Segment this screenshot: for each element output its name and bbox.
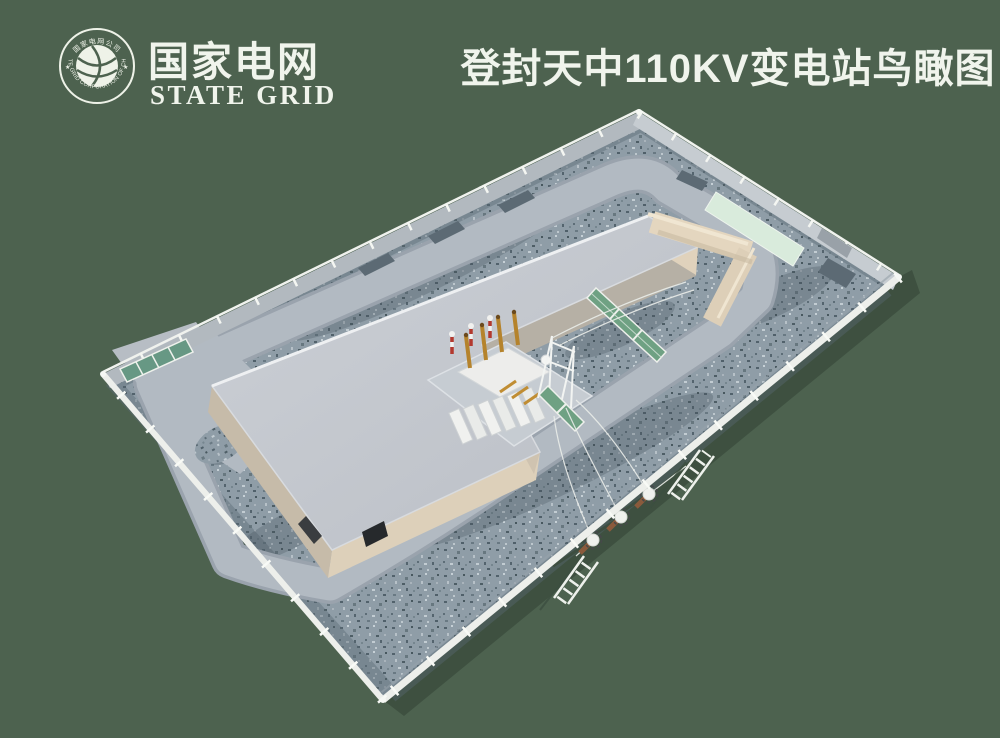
emblem-star-left: ★ <box>65 64 70 71</box>
logo-name-en: STATE GRID <box>150 80 337 110</box>
aerial-rendering-canvas: 国家电网公司 STATE GRID CORPORATION OF CHINA ★… <box>0 0 1000 738</box>
substation-aerial-page: 国家电网公司 STATE GRID CORPORATION OF CHINA ★… <box>0 0 1000 738</box>
logo-name-zh: 国家电网 <box>148 39 320 85</box>
emblem-star-right: ★ <box>123 64 128 71</box>
page-title: 登封天中110KV变电站鸟瞰图 <box>459 47 995 91</box>
